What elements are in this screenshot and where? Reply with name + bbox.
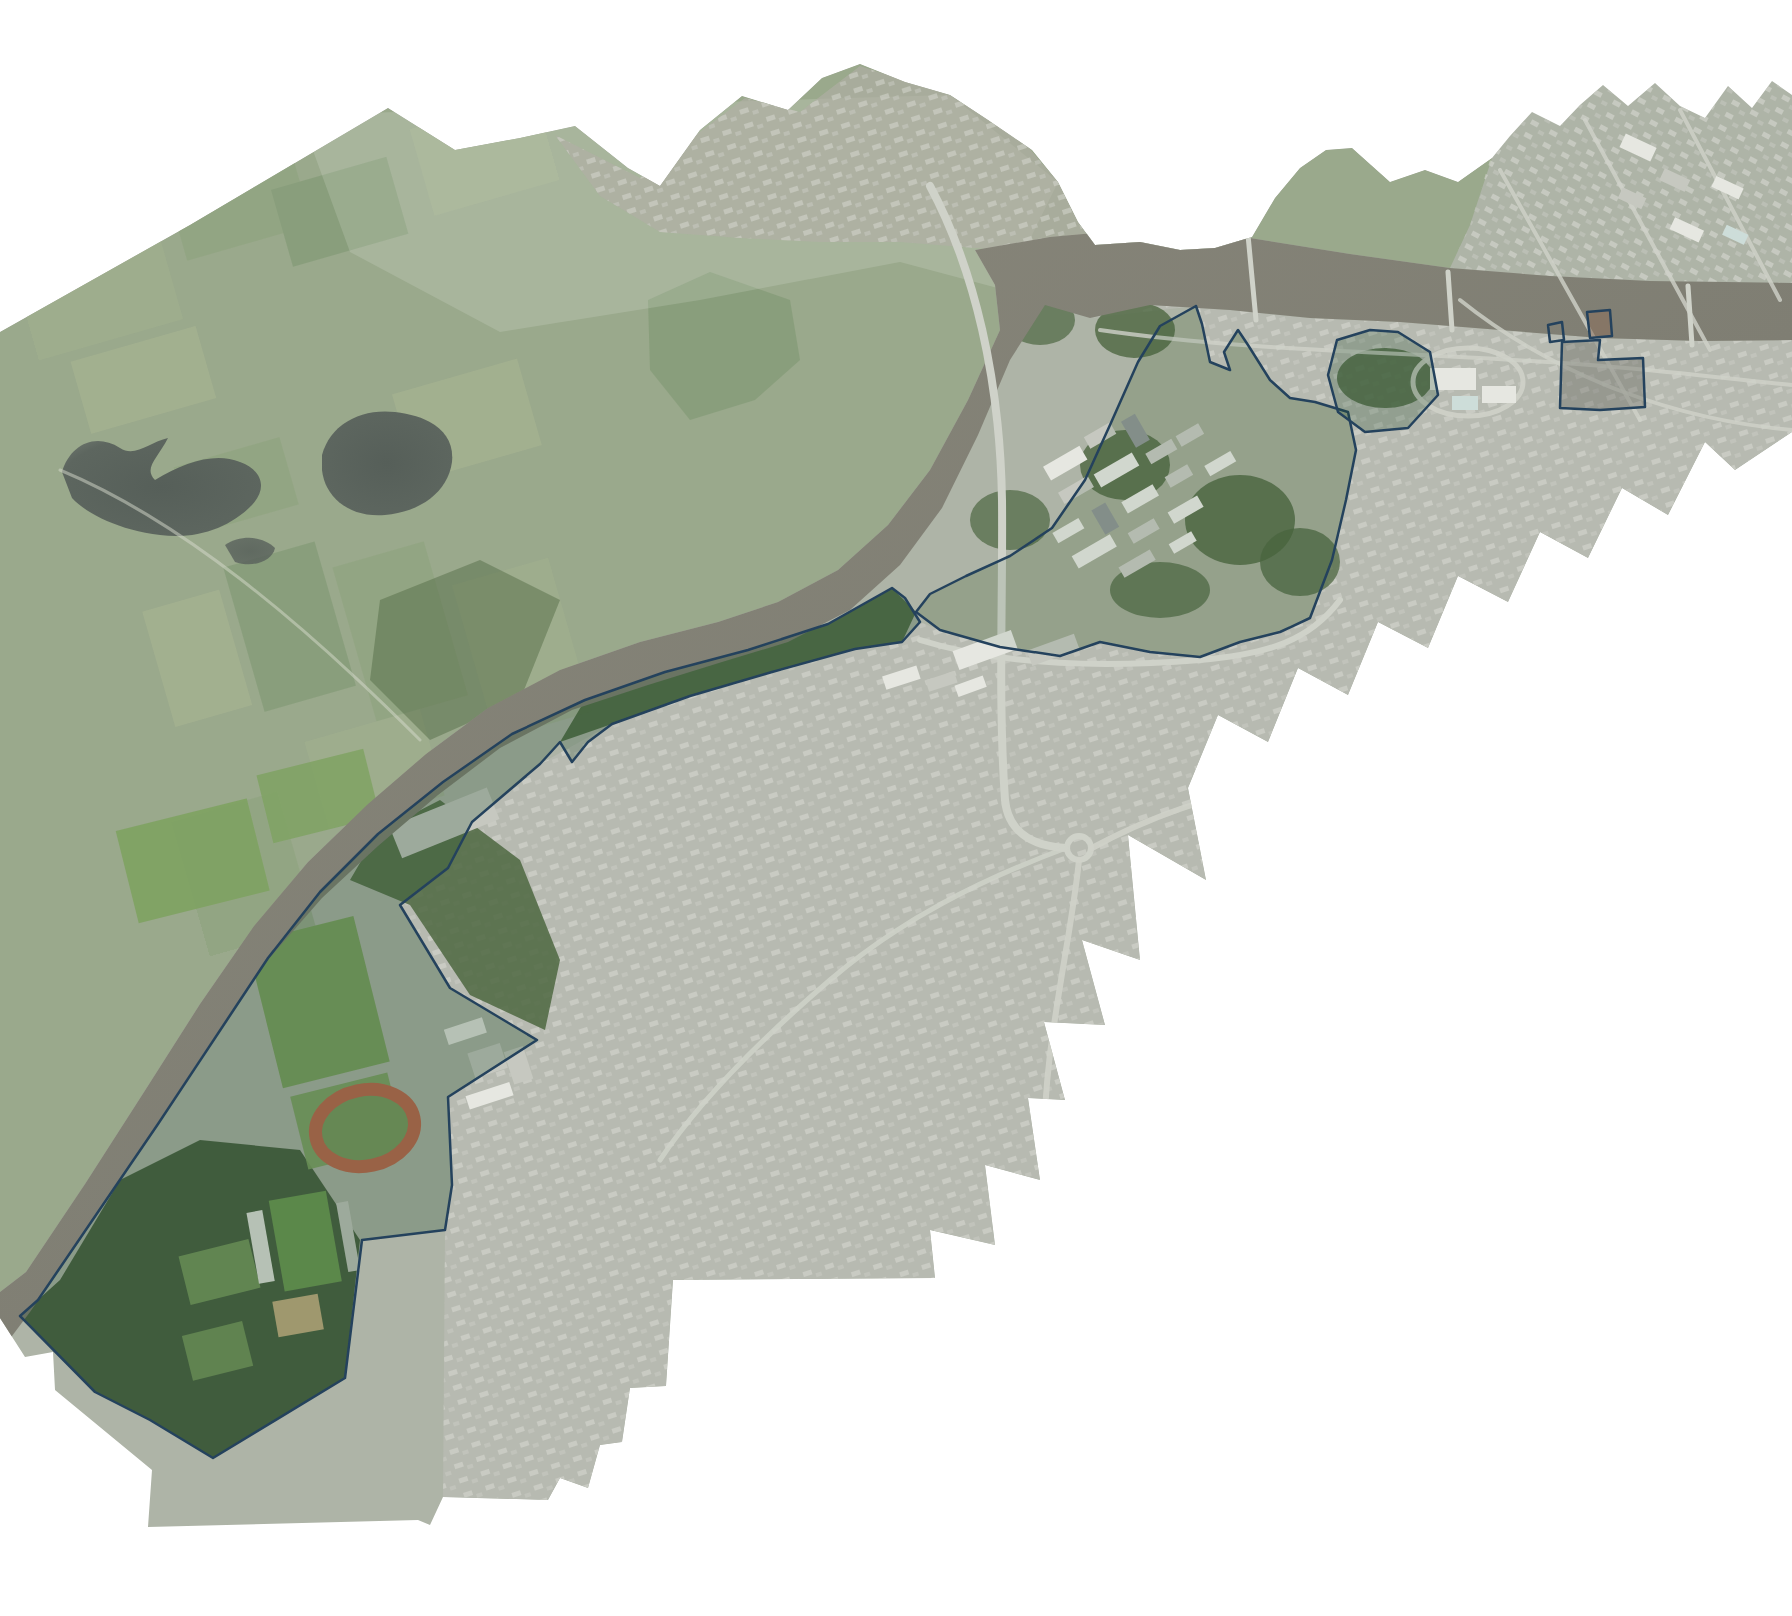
aerial-map-canvas [0,0,1792,1616]
aerial-photomosaic [0,0,1792,1616]
small-parcel-b [1587,310,1612,338]
